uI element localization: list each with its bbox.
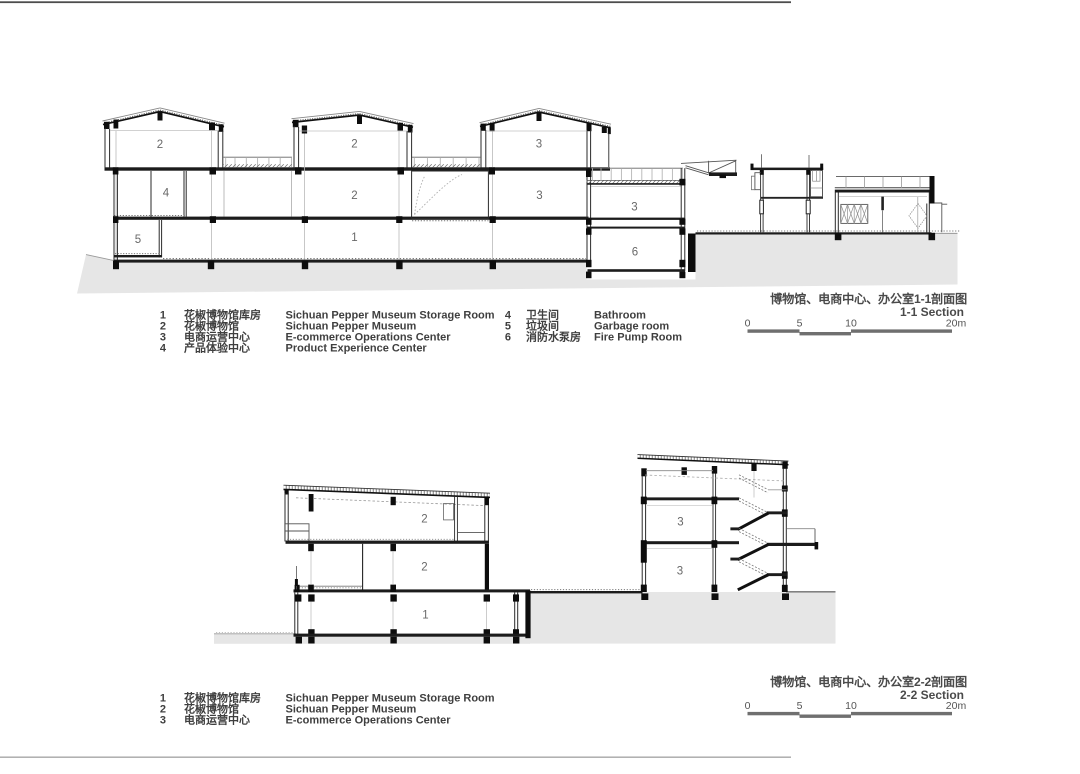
- svg-text:卫生间: 卫生间: [526, 308, 559, 322]
- svg-text:电商运营中心: 电商运营中心: [184, 713, 250, 727]
- svg-text:博物馆、电商中心、办公室2-2剖面图: 博物馆、电商中心、办公室2-2剖面图: [770, 674, 967, 689]
- svg-text:2: 2: [351, 139, 357, 151]
- svg-text:E-commerce Operations Center: E-commerce Operations Center: [286, 715, 452, 727]
- svg-text:3: 3: [536, 139, 542, 151]
- svg-text:2: 2: [351, 190, 357, 202]
- svg-text:3: 3: [160, 715, 166, 727]
- svg-text:6: 6: [505, 332, 511, 344]
- svg-text:3: 3: [677, 517, 683, 529]
- svg-text:垃圾间: 垃圾间: [526, 319, 559, 333]
- svg-text:1: 1: [351, 232, 357, 244]
- svg-text:0: 0: [745, 700, 751, 712]
- svg-text:5: 5: [797, 318, 803, 330]
- svg-text:3: 3: [536, 190, 542, 202]
- svg-text:博物馆、电商中心、办公室1-1剖面图: 博物馆、电商中心、办公室1-1剖面图: [770, 291, 967, 306]
- svg-text:10: 10: [845, 700, 857, 712]
- svg-text:3: 3: [631, 202, 637, 214]
- svg-text:花椒博物馆库房: 花椒博物馆库房: [184, 308, 261, 322]
- svg-text:6: 6: [632, 247, 638, 259]
- svg-text:花椒博物馆: 花椒博物馆: [184, 319, 239, 333]
- svg-text:产品体验中心: 产品体验中心: [184, 341, 250, 355]
- svg-text:20m: 20m: [946, 318, 967, 330]
- svg-text:5: 5: [797, 700, 803, 712]
- svg-text:Fire Pump Room: Fire Pump Room: [594, 332, 682, 344]
- svg-text:2: 2: [421, 514, 427, 526]
- svg-text:Product Experience Center: Product Experience Center: [286, 343, 428, 355]
- svg-text:4: 4: [160, 343, 167, 355]
- svg-text:20m: 20m: [946, 700, 967, 712]
- svg-text:2: 2: [157, 139, 163, 151]
- svg-text:4: 4: [163, 188, 170, 200]
- svg-text:10: 10: [845, 318, 857, 330]
- svg-text:3: 3: [677, 566, 683, 578]
- svg-text:1: 1: [422, 610, 428, 622]
- svg-text:2: 2: [421, 562, 427, 574]
- svg-text:花椒博物馆: 花椒博物馆: [184, 702, 239, 716]
- svg-text:0: 0: [745, 318, 751, 330]
- svg-text:5: 5: [135, 234, 141, 246]
- svg-text:花椒博物馆库房: 花椒博物馆库房: [184, 691, 261, 705]
- svg-text:消防水泵房: 消防水泵房: [526, 330, 581, 344]
- svg-text:电商运营中心: 电商运营中心: [184, 330, 250, 344]
